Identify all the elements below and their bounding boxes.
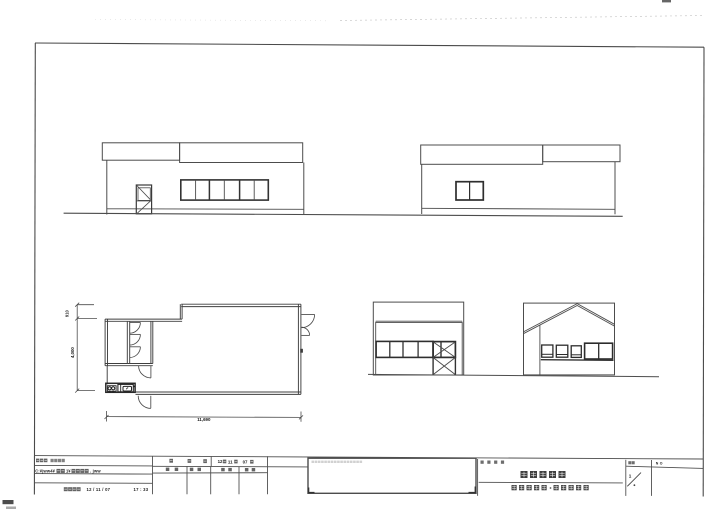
svg-text:11: 11 — [228, 459, 233, 464]
svg-text:. jww: . jww — [90, 469, 101, 474]
svg-text:1¥: 1¥ — [66, 469, 71, 474]
svg-text:17 : 33: 17 : 33 — [134, 487, 149, 492]
svg-text:4,000: 4,000 — [70, 347, 75, 358]
svg-text:910: 910 — [65, 309, 70, 317]
svg-text:11,690: 11,690 — [197, 417, 211, 422]
svg-text:1: 1 — [629, 473, 632, 478]
svg-text:12 / 11 / 07: 12 / 11 / 07 — [87, 487, 111, 492]
svg-text:07: 07 — [243, 459, 248, 464]
svg-text:12: 12 — [218, 459, 223, 464]
svg-text:C:¥jww4¥: C:¥jww4¥ — [35, 469, 55, 474]
svg-text:N O: N O — [656, 462, 663, 466]
